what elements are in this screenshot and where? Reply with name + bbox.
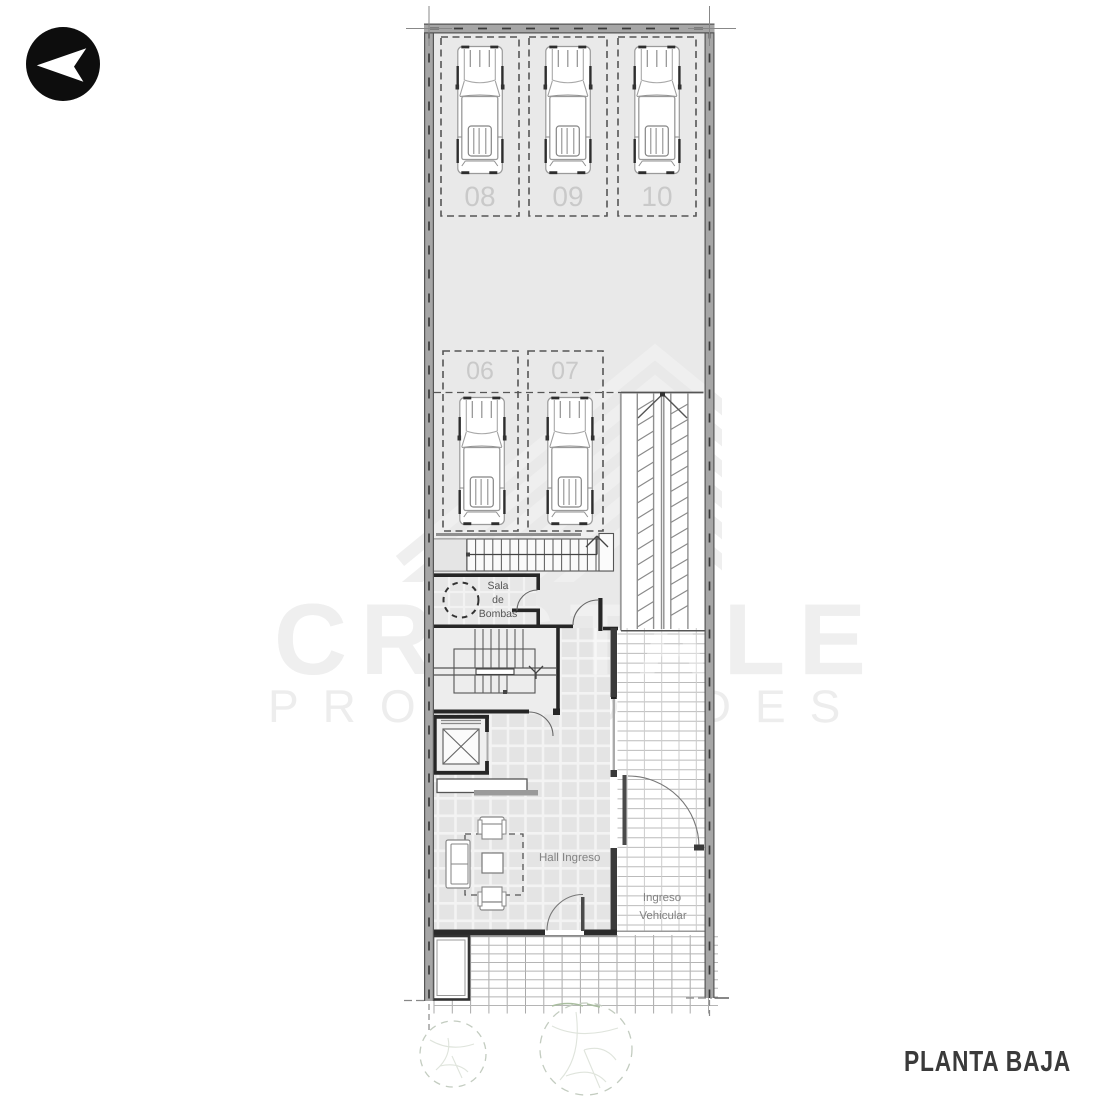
svg-text:PLANTA BAJA: PLANTA BAJA xyxy=(904,1047,1071,1078)
svg-text:08: 08 xyxy=(464,181,495,212)
svg-text:Bombas: Bombas xyxy=(479,608,518,620)
svg-text:Vehicular: Vehicular xyxy=(639,910,686,922)
svg-text:07: 07 xyxy=(551,357,579,385)
svg-text:Sala: Sala xyxy=(487,580,508,592)
svg-text:10: 10 xyxy=(641,181,672,212)
svg-text:Hall Ingreso: Hall Ingreso xyxy=(539,852,600,864)
svg-text:09: 09 xyxy=(552,181,583,212)
svg-text:de: de xyxy=(492,594,504,606)
svg-text:06: 06 xyxy=(466,357,494,385)
svg-text:Ingreso: Ingreso xyxy=(643,892,681,904)
svg-text:CRISTALE: CRISTALE xyxy=(274,584,880,696)
